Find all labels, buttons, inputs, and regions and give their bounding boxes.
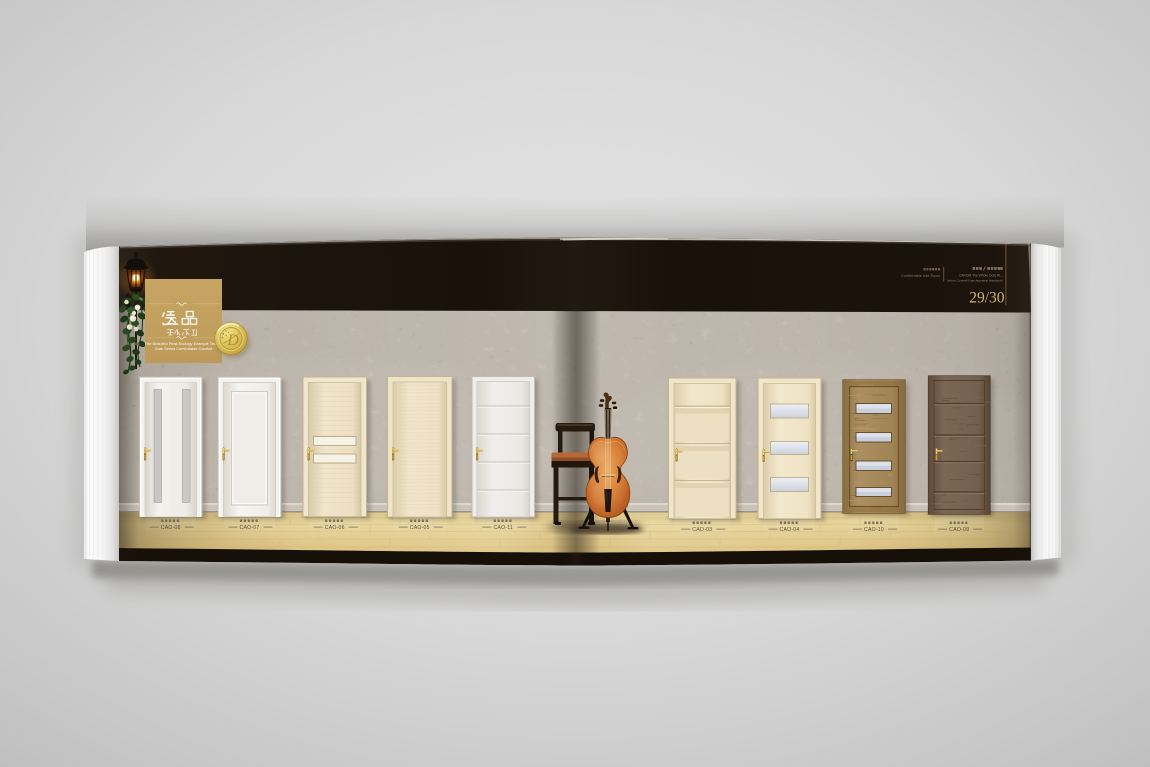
- svg-text:CAROM The Whole Gots W...: CAROM The Whole Gots W...: [959, 274, 1003, 278]
- svg-text:Gate Series Comfortable Comfor: Gate Series Comfortable Comfort: [155, 346, 214, 351]
- svg-text:Indoor Coverall Gate Appraisal: Indoor Coverall Gate Appraisal Handbook: [947, 279, 1003, 283]
- svg-text:Comfortable Add Room: Comfortable Add Room: [901, 274, 940, 278]
- svg-text:29/30: 29/30: [969, 290, 1005, 307]
